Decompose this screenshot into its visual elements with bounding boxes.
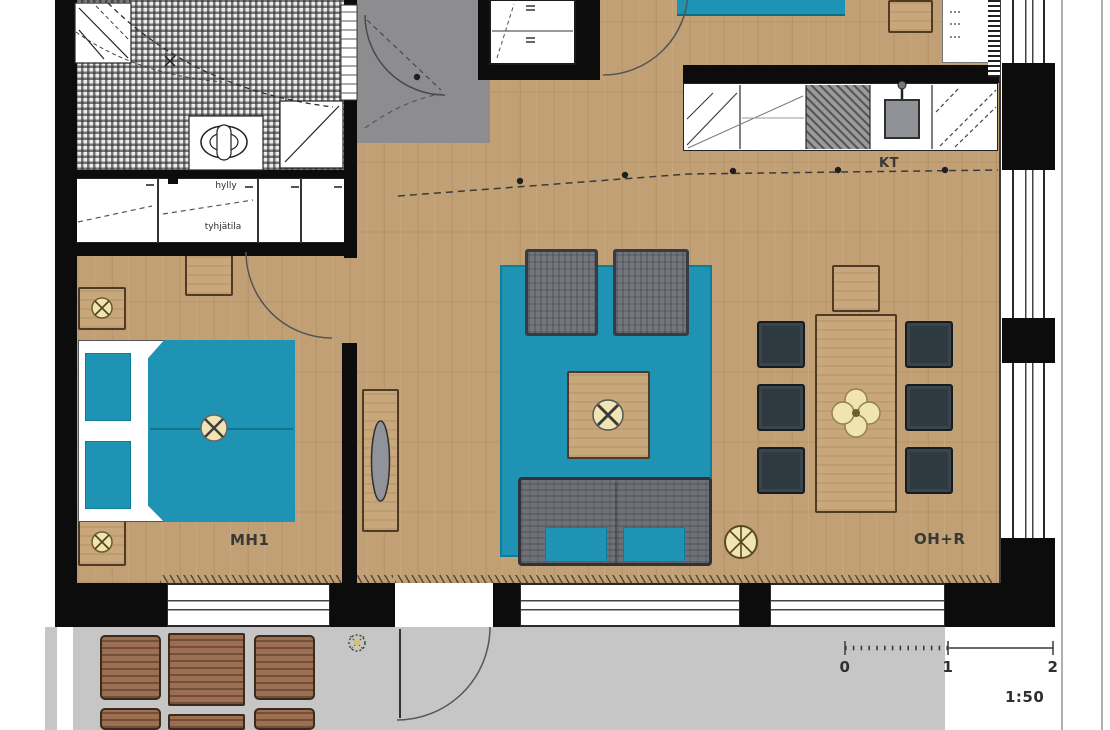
balcony-chair: [254, 708, 315, 730]
wall-bottom-seg: [740, 583, 770, 627]
closet-lower-label: tyhjätila: [188, 222, 258, 232]
closet-code-mark: [291, 186, 299, 188]
window-right-mid: [1012, 170, 1045, 318]
stove: [806, 85, 870, 149]
balcony-chair: [254, 635, 315, 700]
dining-chair: [757, 384, 805, 431]
closet-code-mark: [146, 184, 154, 186]
hall-console: [362, 389, 399, 532]
bed-blanket: [148, 340, 295, 522]
wall-bottom-seg: [330, 583, 395, 627]
upper-room-chair: [888, 0, 933, 33]
scale-ratio-label: 1:50: [1005, 688, 1044, 706]
closet-divider: [157, 178, 159, 243]
wall-bath-bottom: [73, 170, 344, 178]
bedroom-label: MH1: [230, 531, 269, 549]
bathroom-floor: [75, 0, 344, 170]
sofa-cushion: [545, 527, 607, 562]
window-right-top: [1012, 0, 1045, 63]
closet-shelf-label: hylly: [196, 181, 256, 191]
wall-kitchen-top: [683, 65, 1000, 83]
nightstand: [78, 519, 126, 566]
armchair: [525, 249, 598, 336]
window-bedroom: [167, 583, 330, 627]
window-right-bottom: [1012, 363, 1045, 538]
window-living-right: [770, 583, 945, 627]
balcony-edge-strip: [57, 627, 73, 730]
nightstand: [78, 287, 126, 330]
scale-start-label: 0: [839, 658, 851, 676]
living-room-label: OH+R: [914, 530, 965, 548]
closet-hinge-stub: [168, 175, 178, 184]
sofa-cushion: [623, 527, 685, 562]
interior-wall-face-line: [999, 0, 1001, 583]
wall-right-a: [1002, 63, 1055, 170]
window-living-left: [520, 583, 740, 627]
dining-chair-head: [832, 265, 880, 312]
balcony-chair: [100, 635, 161, 700]
scale-mid-label: 1: [942, 658, 954, 676]
wall-bath-entry: [344, 0, 357, 258]
wall-bottom-seg: [55, 583, 167, 627]
wall-bedroom-top: [55, 243, 345, 256]
wall-right-b: [1002, 318, 1055, 363]
window-hatch-strip: [988, 0, 1000, 77]
bed-pillow: [85, 441, 131, 509]
wall-bedroom-right: [342, 343, 357, 585]
wall-left: [55, 0, 77, 585]
armchair: [613, 249, 689, 336]
wall-bottom-seg: [493, 583, 520, 627]
radiator-hatch: [395, 575, 992, 583]
closet-code-mark: [334, 186, 342, 188]
entry-floor-lower: [357, 80, 490, 143]
dining-chair: [905, 384, 953, 431]
closet-divider: [257, 178, 259, 243]
dining-chair: [757, 447, 805, 494]
dining-chair: [757, 321, 805, 368]
entry-floor-upper: [357, 0, 478, 80]
radiator-hatch: [160, 575, 393, 583]
scale-end-label: 2: [1047, 658, 1059, 676]
dresser: [185, 249, 233, 296]
balcony-chair: [100, 708, 161, 730]
floor-plan-canvas: MH1 KT OH+R hylly tyhjätila 0 1 2 1:50: [0, 0, 1110, 730]
upper-room-bed: [677, 0, 845, 16]
dining-table: [815, 314, 897, 513]
kitchen-label: KT: [879, 156, 899, 171]
coffee-table: [567, 371, 650, 459]
balcony-table: [168, 633, 245, 706]
facade-line: [1061, 0, 1063, 730]
kitchen-sink-basin: [884, 99, 920, 139]
dining-chair: [905, 321, 953, 368]
balcony-table: [168, 714, 245, 730]
facade-line: [1101, 0, 1103, 730]
closet-divider: [300, 178, 302, 243]
wall-closet-right: [575, 0, 600, 80]
bed-pillow: [85, 353, 131, 421]
wall-bottom-corner: [945, 583, 1055, 627]
dining-chair: [905, 447, 953, 494]
